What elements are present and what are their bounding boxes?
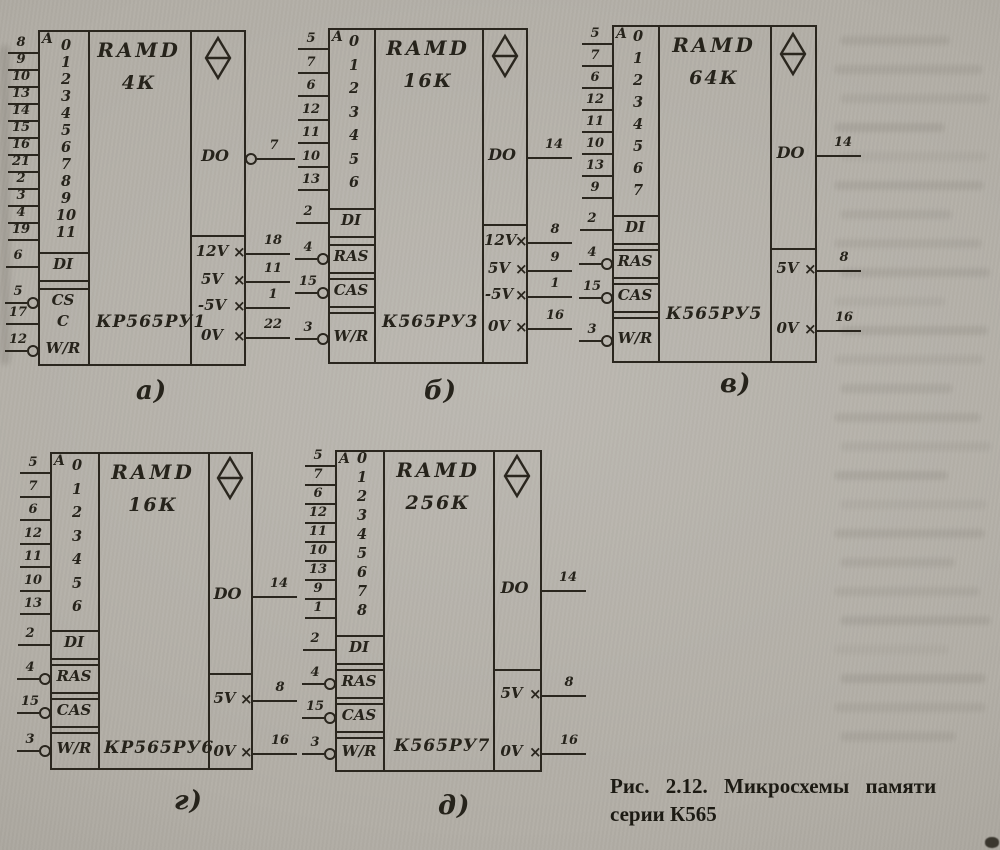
- pin-line: [257, 158, 295, 160]
- addr-digit: 8: [345, 604, 379, 619]
- cell-divider: [50, 726, 98, 728]
- pin-number: 5: [19, 456, 47, 469]
- pin-number: 7: [581, 49, 609, 62]
- chip-part-number: К565РУ3: [382, 314, 478, 331]
- pin-stub: [582, 109, 612, 111]
- addr-digit: 3: [338, 106, 370, 121]
- cell-divider: [38, 288, 88, 290]
- pin-stub: [298, 48, 328, 50]
- pin-number: 12: [304, 506, 332, 519]
- output-label: DO: [495, 580, 534, 596]
- pin-number: 8: [829, 251, 859, 264]
- pin-stub: [582, 131, 612, 133]
- addr-digit: 3: [345, 509, 379, 524]
- inversion-bubble-icon: [39, 707, 51, 719]
- pin-stub: [298, 142, 328, 144]
- right-zone-divider: [770, 25, 772, 363]
- pin-number: 6: [297, 79, 325, 92]
- pin-stub: [579, 297, 601, 299]
- cell-divider: [50, 630, 98, 632]
- pin-stub: [582, 197, 612, 199]
- pin-number: 11: [304, 525, 332, 538]
- control-label: RAS: [52, 669, 96, 684]
- pin-stub: [6, 266, 38, 268]
- pin-number: 16: [829, 311, 859, 324]
- pin-stub: [20, 613, 50, 615]
- figure-caption-line1: Рис. 2.12. Микросхемы памяти: [610, 772, 992, 800]
- power-label: 0V: [495, 744, 528, 759]
- pin-number: 7: [304, 468, 332, 481]
- control-label: CAS: [337, 708, 381, 723]
- pin-line: [528, 157, 572, 159]
- chip-capacity: 256К: [383, 494, 493, 513]
- pin-stub: [298, 119, 328, 121]
- addr-digit: 1: [48, 56, 84, 71]
- pin-stub: [302, 717, 324, 719]
- pin-number: 16: [7, 138, 35, 151]
- chip-title: RAMD: [98, 462, 208, 482]
- cell-divider: [50, 664, 98, 666]
- chip-title: RAMD: [374, 38, 482, 58]
- output-label: DO: [192, 148, 238, 164]
- pin-number: 9: [304, 582, 332, 595]
- pin-number: 3: [302, 736, 328, 749]
- cell-divider: [335, 663, 383, 665]
- addr-digit: 3: [48, 90, 84, 105]
- chip-capacity: 16К: [98, 496, 208, 515]
- pin-number: 16: [554, 734, 584, 747]
- addr-digit: 7: [345, 585, 379, 600]
- power-divider: [208, 673, 253, 675]
- power-label: -5V: [192, 298, 232, 313]
- pin-number: 11: [297, 126, 325, 139]
- inversion-bubble-icon: [601, 335, 613, 347]
- pin-stub: [295, 258, 317, 260]
- pin-stub: [20, 543, 50, 545]
- addr-digit: 0: [48, 39, 84, 54]
- pin-number: 17: [5, 306, 31, 319]
- power-x-icon: [804, 262, 817, 277]
- figure-caption-line2: серии К565: [610, 800, 992, 828]
- cell-divider: [50, 692, 98, 694]
- control-label: W/R: [614, 331, 656, 346]
- pin-stub: [17, 750, 39, 752]
- power-x-icon: [233, 273, 246, 288]
- cell-divider: [335, 697, 383, 699]
- cell-divider: [38, 252, 88, 254]
- addr-digit: 1: [60, 483, 94, 498]
- output-label: DO: [772, 145, 809, 161]
- cell-divider: [612, 283, 658, 285]
- pin-stub: [8, 239, 38, 241]
- chip-part-number: К565РУ7: [394, 738, 490, 755]
- chip-capacity: 4К: [88, 74, 190, 93]
- pin-line: [542, 695, 586, 697]
- pin-number: 4: [17, 661, 43, 674]
- addr-digit: 8: [48, 175, 84, 190]
- pin-number: 10: [7, 70, 35, 83]
- control-label: RAS: [614, 254, 656, 269]
- power-label: 5V: [484, 261, 514, 276]
- power-label: 0V: [192, 328, 232, 343]
- pin-number: 10: [581, 137, 609, 150]
- pin-stub: [20, 519, 50, 521]
- pin-number: 3: [17, 733, 43, 746]
- pin-number: 14: [554, 571, 582, 584]
- pin-number: 12: [297, 103, 325, 116]
- power-label: 5V: [192, 272, 232, 287]
- pin-stub: [580, 229, 612, 231]
- addr-digit: 6: [338, 176, 370, 191]
- pin-number: 5: [297, 32, 325, 45]
- pin-line: [817, 330, 861, 332]
- pin-stub: [20, 590, 50, 592]
- pin-stub: [579, 340, 601, 342]
- pin-stub: [582, 65, 612, 67]
- inversion-bubble-icon: [39, 745, 51, 757]
- pin-line: [528, 270, 572, 272]
- chip-title: RAMD: [88, 40, 190, 60]
- addr-digit: 0: [338, 35, 370, 50]
- memory-diamond-icon: [504, 455, 530, 497]
- cell-divider: [335, 731, 383, 733]
- pin-stub: [5, 302, 27, 304]
- pin-number: 14: [265, 577, 293, 590]
- scanned-book-page: A081921031341451561672182931041119DI6CS5…: [0, 0, 1000, 850]
- power-x-icon: [233, 329, 246, 344]
- pin-stub: [18, 644, 50, 646]
- pin-number: 9: [540, 251, 570, 264]
- pin-number: 7: [297, 56, 325, 69]
- control-label: C: [40, 314, 86, 329]
- chip-caption: в): [720, 371, 751, 397]
- control-label: W/R: [52, 741, 96, 756]
- control-label: DI: [614, 220, 656, 235]
- addr-digit: 7: [622, 184, 654, 199]
- control-label: DI: [337, 640, 381, 655]
- power-label: 12V: [484, 233, 514, 248]
- power-x-icon: [804, 322, 817, 337]
- pin-line: [253, 753, 297, 755]
- cell-divider: [612, 215, 658, 217]
- right-zone-divider: [208, 452, 210, 770]
- pin-stub: [582, 175, 612, 177]
- page-corner-smudge: [985, 837, 999, 848]
- power-label: 12V: [192, 244, 232, 259]
- pin-number: 6: [19, 503, 47, 516]
- power-x-icon: [515, 234, 528, 249]
- right-zone-divider: [482, 28, 484, 364]
- memory-diamond-icon: [217, 457, 243, 499]
- pin-stub: [296, 222, 328, 224]
- pin-stub: [582, 87, 612, 89]
- pin-number: 13: [581, 159, 609, 172]
- figure-caption: Рис. 2.12. Микросхемы памяти серии К565: [610, 772, 992, 828]
- power-label: 5V: [772, 261, 803, 276]
- cell-divider: [328, 208, 374, 210]
- right-zone-divider: [493, 450, 495, 772]
- pin-number: 12: [581, 93, 609, 106]
- cell-divider: [328, 278, 374, 280]
- inversion-bubble-icon: [324, 678, 336, 690]
- chip-caption: д): [438, 793, 470, 819]
- chip-part-number: КР565РУ6: [104, 740, 214, 757]
- inversion-bubble-icon: [27, 345, 39, 357]
- inversion-bubble-icon: [317, 287, 329, 299]
- pin-number: 15: [295, 275, 321, 288]
- addr-digit: 6: [60, 600, 94, 615]
- pin-number: 15: [17, 695, 43, 708]
- pin-number: 9: [7, 53, 35, 66]
- cell-divider: [335, 703, 383, 705]
- cell-divider: [335, 669, 383, 671]
- pin-number: 5: [581, 27, 609, 40]
- control-label: RAS: [337, 674, 381, 689]
- cell-divider: [50, 732, 98, 734]
- pin-line: [246, 337, 290, 339]
- pin-number: 8: [540, 223, 570, 236]
- pin-stub: [20, 472, 50, 474]
- addr-digit: 6: [48, 141, 84, 156]
- inversion-bubble-icon: [39, 673, 51, 685]
- pin-number: 6: [581, 71, 609, 84]
- pin-stub: [20, 566, 50, 568]
- pin-stub: [295, 338, 317, 340]
- control-label: W/R: [330, 329, 372, 344]
- pin-line: [528, 328, 572, 330]
- cell-divider: [328, 312, 374, 314]
- pin-number: 4: [7, 206, 35, 219]
- addr-digit: 2: [622, 74, 654, 89]
- cell-divider: [50, 698, 98, 700]
- pin-number: 4: [302, 666, 328, 679]
- power-label: 5V: [210, 691, 239, 706]
- pin-stub: [298, 166, 328, 168]
- power-x-icon: [529, 745, 542, 760]
- chip-caption: а): [136, 378, 167, 404]
- pin-number: 5: [5, 285, 31, 298]
- pin-number: 2: [579, 212, 605, 225]
- chip-title: RAMD: [383, 460, 493, 480]
- cell-divider: [328, 244, 374, 246]
- pin-number: 13: [7, 87, 35, 100]
- pin-stub: [295, 292, 317, 294]
- pin-stub: [582, 153, 612, 155]
- cell-divider: [50, 658, 98, 660]
- pin-stub: [302, 683, 324, 685]
- power-x-icon: [233, 245, 246, 260]
- power-label: 5V: [495, 686, 528, 701]
- power-x-icon: [240, 692, 253, 707]
- cell-divider: [612, 243, 658, 245]
- addr-digit: 0: [622, 30, 654, 45]
- addr-digit: 1: [622, 52, 654, 67]
- pin-number: 11: [258, 262, 288, 275]
- pin-number: 18: [258, 234, 288, 247]
- pin-number: 8: [265, 681, 295, 694]
- pin-number: 16: [540, 309, 570, 322]
- power-divider: [482, 224, 528, 226]
- chip-caption: б): [424, 378, 457, 404]
- pin-line: [253, 700, 297, 702]
- pin-number: 6: [304, 487, 332, 500]
- addr-digit: 4: [622, 118, 654, 133]
- pin-number: 2: [295, 205, 321, 218]
- power-label: -5V: [484, 287, 514, 302]
- pin-stub: [305, 617, 335, 619]
- addr-digit: 4: [60, 553, 94, 568]
- addr-digit: 1: [338, 59, 370, 74]
- addr-digit: 5: [622, 140, 654, 155]
- addr-digit: 11: [48, 226, 84, 241]
- pin-number: 10: [304, 544, 332, 557]
- power-label: 0V: [484, 319, 514, 334]
- addr-digit: 3: [60, 530, 94, 545]
- pin-number: 12: [19, 527, 47, 540]
- memory-diamond-icon: [205, 37, 231, 79]
- pin-line: [528, 242, 572, 244]
- pin-stub: [303, 649, 335, 651]
- addr-digit: 2: [48, 73, 84, 88]
- pin-line: [253, 596, 297, 598]
- addr-digit: 1: [345, 471, 379, 486]
- pin-stub: [17, 712, 39, 714]
- pin-number: 4: [295, 241, 321, 254]
- pin-number: 13: [297, 173, 325, 186]
- pin-number: 10: [297, 150, 325, 163]
- pin-line: [817, 270, 861, 272]
- control-label: CAS: [614, 288, 656, 303]
- pin-number: 14: [829, 136, 857, 149]
- pin-number: 8: [7, 36, 35, 49]
- addr-digit: 7: [48, 158, 84, 173]
- power-divider: [770, 248, 817, 250]
- addr-digit: 4: [48, 107, 84, 122]
- control-label: CAS: [52, 703, 96, 718]
- pin-stub: [579, 263, 601, 265]
- pin-number: 12: [5, 333, 31, 346]
- addr-digit: 0: [345, 452, 379, 467]
- cell-divider: [328, 306, 374, 308]
- cell-divider: [328, 272, 374, 274]
- power-x-icon: [515, 320, 528, 335]
- pin-line: [817, 155, 861, 157]
- chip-title: RAMD: [658, 35, 770, 55]
- cell-divider: [335, 737, 383, 739]
- pin-number: 7: [19, 480, 47, 493]
- pin-number: 3: [295, 321, 321, 334]
- addr-digit: 9: [48, 192, 84, 207]
- addr-digit: 5: [60, 577, 94, 592]
- pin-number: 21: [7, 155, 35, 168]
- control-label: W/R: [337, 744, 381, 759]
- pin-line: [246, 307, 290, 309]
- pin-number: 8: [554, 676, 584, 689]
- addr-digit: 5: [345, 547, 379, 562]
- cell-divider: [38, 280, 88, 282]
- pin-stub: [5, 350, 27, 352]
- pin-number: 15: [7, 121, 35, 134]
- addr-digit: 2: [338, 82, 370, 97]
- power-x-icon: [233, 299, 246, 314]
- pin-number: 11: [581, 115, 609, 128]
- inversion-bubble-icon: [601, 292, 613, 304]
- power-x-icon: [515, 262, 528, 277]
- pin-line: [542, 753, 586, 755]
- pin-number: 2: [17, 627, 43, 640]
- addr-digit: 2: [60, 506, 94, 521]
- inversion-bubble-icon: [317, 333, 329, 345]
- addr-digit: 2: [345, 490, 379, 505]
- pin-number: 2: [302, 632, 328, 645]
- chip-part-number: КР565РУ1: [96, 314, 206, 331]
- power-x-icon: [240, 745, 253, 760]
- addr-digit: 6: [345, 566, 379, 581]
- chip-capacity: 16К: [374, 72, 482, 91]
- chip-part-number: К565РУ5: [666, 306, 762, 323]
- pin-line: [246, 253, 290, 255]
- cell-divider: [612, 317, 658, 319]
- pin-number: 14: [540, 138, 568, 151]
- pin-number: 1: [540, 277, 570, 290]
- power-label: 0V: [772, 321, 803, 336]
- inversion-bubble-icon: [324, 712, 336, 724]
- pin-number: 19: [7, 223, 35, 236]
- pin-number: 15: [579, 280, 605, 293]
- addr-digit: 10: [48, 209, 84, 224]
- pin-stub: [17, 678, 39, 680]
- pin-number: 1: [304, 601, 332, 614]
- addr-digit: 0: [60, 459, 94, 474]
- chip-diagrams: A081921031341451561672182931041119DI6CS5…: [0, 0, 1000, 850]
- pin-number: 11: [19, 550, 47, 563]
- pin-number: 13: [304, 563, 332, 576]
- output-label: DO: [210, 586, 245, 602]
- pin-number: 3: [579, 323, 605, 336]
- pin-stub: [302, 753, 324, 755]
- pin-number: 5: [304, 449, 332, 462]
- addr-digit: 5: [338, 153, 370, 168]
- addr-digit: 5: [48, 124, 84, 139]
- pin-stub: [6, 323, 38, 325]
- pin-number: 9: [581, 181, 609, 194]
- pin-number: 16: [265, 734, 295, 747]
- power-divider: [190, 235, 246, 237]
- pin-stub: [582, 43, 612, 45]
- control-label: W/R: [40, 341, 86, 356]
- control-label: CAS: [330, 283, 372, 298]
- pin-number: 4: [579, 246, 605, 259]
- pin-number: 1: [258, 288, 288, 301]
- pin-line: [246, 281, 290, 283]
- pin-stub: [298, 189, 328, 191]
- chip-capacity: 64К: [658, 69, 770, 88]
- control-label: CS: [40, 293, 86, 308]
- cell-divider: [328, 236, 374, 238]
- memory-diamond-icon: [492, 35, 518, 77]
- output-label: DO: [484, 147, 520, 163]
- pin-stub: [20, 496, 50, 498]
- pin-number: 2: [7, 172, 35, 185]
- power-x-icon: [515, 288, 528, 303]
- pin-number: 10: [19, 574, 47, 587]
- cell-divider: [612, 277, 658, 279]
- pin-number: 13: [19, 597, 47, 610]
- pin-line: [528, 296, 572, 298]
- addr-digit: 3: [622, 96, 654, 111]
- inversion-bubble-icon: [324, 748, 336, 760]
- cell-divider: [335, 635, 383, 637]
